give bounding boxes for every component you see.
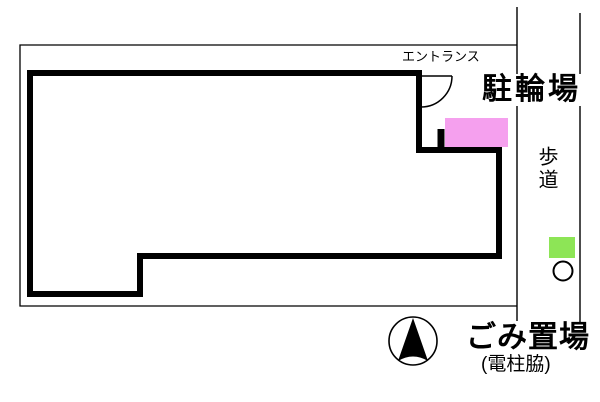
garbage-area-note: (電柱脇)	[481, 355, 551, 375]
site-plan: エントランス 駐輪場 歩道 ごみ置場 (電柱脇)	[0, 0, 600, 402]
north-compass-icon	[389, 317, 437, 365]
garbage-marker-fill	[549, 237, 575, 258]
sidewalk-label: 歩道	[535, 146, 556, 192]
garbage-area-label: ごみ置場	[466, 322, 590, 354]
bicycle-parking-label: 駐輪場	[481, 74, 582, 106]
entrance-door-swing-arc	[421, 76, 452, 107]
site-boundary	[20, 45, 517, 306]
utility-pole-circle	[554, 262, 573, 281]
bicycle-area-fill	[445, 118, 508, 147]
entrance-label: エントランス	[402, 50, 480, 64]
